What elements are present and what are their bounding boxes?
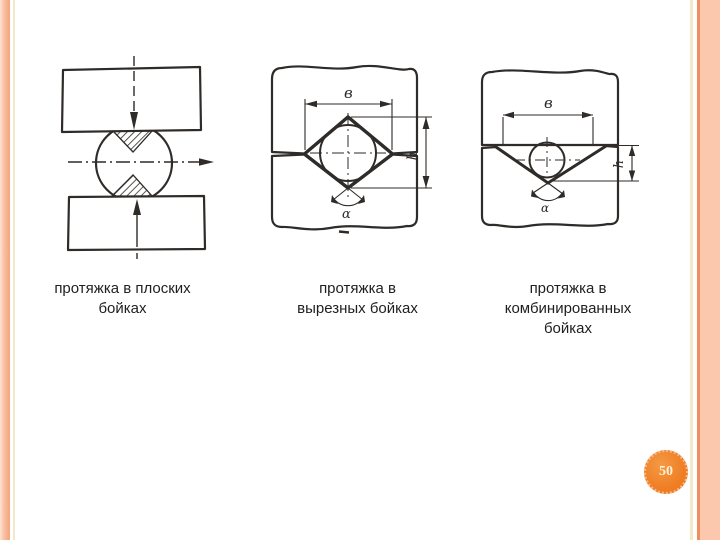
caption-line: протяжка в: [530, 280, 607, 297]
figure-combined-dies: в h α: [468, 60, 658, 245]
caption-line: бойках: [98, 300, 146, 317]
width-dim-label: в: [344, 84, 353, 102]
page-number: 50: [659, 464, 673, 480]
figure-v-grooved-dies: в h α: [260, 55, 465, 245]
left-accent-bar: [0, 0, 10, 540]
caption-line: протяжка в: [319, 280, 396, 297]
height-dim-label: h: [612, 160, 627, 168]
width-dim-label: в: [544, 94, 553, 112]
caption-line: вырезных бойках: [297, 300, 418, 317]
caption-flat-dies: протяжка в плоских бойках: [25, 279, 220, 319]
upper-v-die: [272, 66, 417, 154]
angle-dim-label: α: [342, 207, 351, 222]
figure-flat-dies: [55, 48, 225, 263]
caption-line: бойках: [544, 320, 592, 337]
right-accent-bar: [700, 0, 720, 540]
caption-v-grooved-dies: протяжка в вырезных бойках: [260, 279, 455, 319]
left-accent-line: [13, 0, 15, 540]
page-number-badge: 50: [644, 450, 688, 494]
feed-direction-arrow: [199, 158, 214, 166]
upper-indent-hatch: [113, 131, 152, 152]
lower-indent-hatch: [112, 175, 152, 196]
caption-line: комбинированных: [505, 300, 632, 317]
height-dim-label: h: [405, 151, 421, 160]
upper-flat-die: [62, 67, 201, 132]
slide-canvas: в h α: [0, 0, 720, 540]
right-accent-line-cream: [690, 0, 693, 540]
angle-dim-label: α: [541, 201, 549, 215]
caption-line: протяжка в плоских: [54, 280, 190, 297]
caption-combined-dies: протяжка в комбинированных бойках: [468, 279, 668, 339]
lower-v-die: [482, 146, 618, 227]
